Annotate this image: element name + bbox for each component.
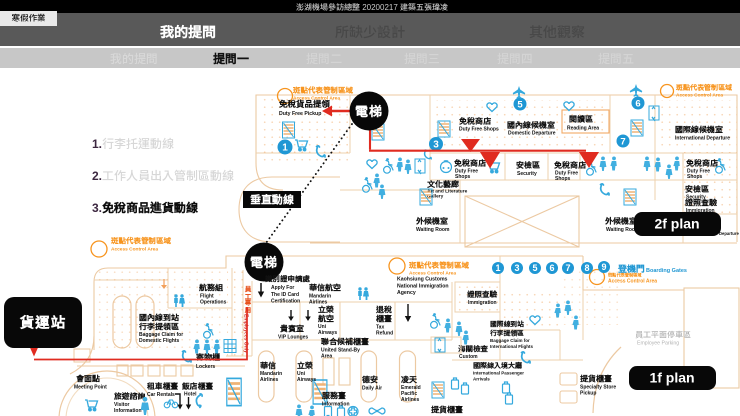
svg-text:航空: 航空 bbox=[317, 314, 334, 324]
svg-text:國際線到站: 國際線到站 bbox=[490, 320, 524, 329]
svg-text:貴賓室: 貴賓室 bbox=[279, 324, 304, 334]
svg-text:飯店櫃臺: 飯店櫃臺 bbox=[181, 381, 213, 391]
svg-text:3: 3 bbox=[433, 140, 439, 151]
svg-text:1: 1 bbox=[495, 263, 500, 273]
svg-text:The ID Card: The ID Card bbox=[271, 292, 299, 298]
svg-text:證照查驗: 證照查驗 bbox=[684, 198, 718, 208]
svg-text:國際線候機室: 國際線候機室 bbox=[675, 125, 723, 135]
svg-text:識別證申請處: 識別證申請處 bbox=[264, 275, 310, 284]
svg-text:Custom: Custom bbox=[459, 354, 478, 360]
svg-text:員工平面停車區: 員工平面停車區 bbox=[635, 331, 691, 340]
svg-text:行李提領區: 行李提領區 bbox=[489, 329, 524, 338]
svg-text:立榮: 立榮 bbox=[318, 305, 334, 315]
svg-text:外候機室: 外候機室 bbox=[415, 216, 448, 226]
svg-text:免稅貨品提領: 免稅貨品提領 bbox=[278, 99, 331, 109]
svg-text:Access Control Area: Access Control Area bbox=[111, 247, 158, 253]
svg-text:Access Control Area: Access Control Area bbox=[608, 279, 657, 285]
svg-text:Daily Air: Daily Air bbox=[362, 386, 382, 392]
svg-text:提貨櫃臺: 提貨櫃臺 bbox=[430, 405, 463, 415]
svg-text:Meeting Point: Meeting Point bbox=[74, 385, 107, 391]
svg-text:Departure: Departure bbox=[719, 231, 739, 236]
svg-text:Airlines: Airlines bbox=[401, 397, 420, 403]
svg-text:證照查驗: 證照查驗 bbox=[467, 290, 497, 299]
svg-text:Domestic Departure: Domestic Departure bbox=[508, 131, 556, 137]
svg-text:貨運站: 貨運站 bbox=[20, 315, 67, 332]
svg-text:華信航空: 華信航空 bbox=[309, 283, 341, 293]
svg-text:德安: 德安 bbox=[361, 375, 379, 385]
svg-text:Shops: Shops bbox=[555, 176, 570, 182]
svg-text:5: 5 bbox=[532, 263, 537, 273]
svg-text:National Immigration: National Immigration bbox=[397, 284, 449, 290]
svg-text:Apply For: Apply For bbox=[271, 285, 294, 291]
svg-text:旅遊諮詢: 旅遊諮詢 bbox=[113, 392, 145, 401]
svg-text:7: 7 bbox=[620, 137, 625, 148]
svg-text:8: 8 bbox=[584, 263, 589, 273]
svg-text:航務組: 航務組 bbox=[198, 283, 223, 293]
svg-text:安檢區: 安檢區 bbox=[685, 184, 710, 194]
svg-text:Arrivals: Arrivals bbox=[473, 377, 490, 382]
svg-text:垂直動線: 垂直動線 bbox=[250, 193, 294, 207]
svg-text:提貨櫃臺: 提貨櫃臺 bbox=[579, 374, 612, 384]
svg-text:Reading Area: Reading Area bbox=[567, 126, 599, 132]
svg-text:Operations: Operations bbox=[200, 300, 227, 306]
svg-text:安檢區: 安檢區 bbox=[516, 160, 541, 170]
svg-text:Refund: Refund bbox=[376, 331, 393, 337]
svg-text:9: 9 bbox=[601, 262, 606, 272]
svg-text:免稅商店: 免稅商店 bbox=[458, 116, 491, 126]
svg-text:Airlines: Airlines bbox=[260, 377, 279, 383]
svg-text:6: 6 bbox=[635, 99, 640, 110]
svg-text:服務臺: 服務臺 bbox=[321, 391, 346, 401]
svg-text:凌天: 凌天 bbox=[400, 375, 418, 385]
svg-text:7: 7 bbox=[565, 263, 570, 273]
svg-text:3: 3 bbox=[514, 263, 519, 273]
svg-text:聯合候補櫃臺: 聯合候補櫃臺 bbox=[320, 337, 369, 347]
svg-text:1f plan: 1f plan bbox=[649, 370, 694, 386]
svg-text:Immigration: Immigration bbox=[468, 300, 497, 306]
svg-text:Waiting Room: Waiting Room bbox=[416, 227, 450, 233]
svg-text:立榮: 立榮 bbox=[297, 361, 313, 371]
svg-text:Employee Parking: Employee Parking bbox=[637, 341, 679, 347]
svg-text:退稅: 退稅 bbox=[375, 306, 393, 315]
svg-text:International Departure: International Departure bbox=[675, 136, 730, 142]
svg-text:Shops: Shops bbox=[687, 174, 702, 180]
svg-text:閱讀區: 閱讀區 bbox=[569, 114, 594, 124]
svg-text:Access Control Area: Access Control Area bbox=[676, 93, 723, 99]
svg-text:外候機室: 外候機室 bbox=[604, 216, 637, 226]
svg-text:5: 5 bbox=[517, 100, 523, 111]
svg-text:文化藝廊: 文化藝廊 bbox=[427, 179, 459, 189]
svg-text:Kaohsiung Customs: Kaohsiung Customs bbox=[397, 277, 448, 283]
svg-text:會面點: 會面點 bbox=[75, 374, 100, 384]
svg-text:登機門: 登機門 bbox=[618, 263, 645, 274]
svg-text:斑點代表管制區域: 斑點代表管制區域 bbox=[292, 86, 353, 95]
svg-text:華信: 華信 bbox=[260, 361, 276, 371]
svg-text:Baggage Claim for: Baggage Claim for bbox=[490, 338, 530, 343]
svg-text:免稅商店: 免稅商店 bbox=[553, 160, 586, 170]
svg-text:Security: Security bbox=[517, 171, 537, 177]
svg-text:租車櫃臺: 租車櫃臺 bbox=[146, 381, 178, 391]
svg-text:行李提領區: 行李提領區 bbox=[138, 322, 180, 332]
svg-text:斑點代表管制區域: 斑點代表管制區域 bbox=[676, 83, 732, 92]
svg-text:Area: Area bbox=[321, 354, 332, 360]
svg-text:Domestic Flights: Domestic Flights bbox=[139, 338, 180, 344]
svg-text:免稅商店: 免稅商店 bbox=[453, 158, 486, 168]
svg-text:6: 6 bbox=[549, 263, 554, 273]
svg-text:Duty Free Shops: Duty Free Shops bbox=[459, 127, 499, 133]
svg-text:免稅商店: 免稅商店 bbox=[685, 158, 718, 168]
svg-text:Certification: Certification bbox=[271, 299, 300, 305]
svg-text:斑點代表管制區域: 斑點代表管制區域 bbox=[408, 261, 469, 270]
svg-text:International Flights: International Flights bbox=[490, 344, 533, 349]
svg-text:Airways: Airways bbox=[297, 377, 316, 383]
svg-text:Duty Free Pickup: Duty Free Pickup bbox=[279, 111, 321, 117]
svg-text:電梯: 電梯 bbox=[355, 104, 383, 119]
svg-text:國內線到站: 國內線到站 bbox=[139, 313, 180, 323]
svg-text:2f plan: 2f plan bbox=[654, 216, 699, 232]
svg-text:Airways: Airways bbox=[318, 330, 337, 336]
svg-text:1: 1 bbox=[282, 143, 288, 154]
svg-text:海關檢查: 海關檢查 bbox=[458, 345, 488, 354]
svg-text:Boarding Gates: Boarding Gates bbox=[646, 268, 687, 274]
svg-text:國際線入境大廳: 國際線入境大廳 bbox=[473, 361, 523, 370]
svg-text:Pickup: Pickup bbox=[580, 391, 596, 397]
svg-text:VIP Lounges: VIP Lounges bbox=[278, 335, 308, 341]
svg-text:Car Rentals: Car Rentals bbox=[147, 392, 175, 398]
svg-text:國內線候機室: 國內線候機室 bbox=[507, 120, 555, 130]
svg-text:櫃臺: 櫃臺 bbox=[375, 314, 392, 324]
svg-text:Lockers: Lockers bbox=[196, 364, 215, 370]
svg-text:Agency: Agency bbox=[397, 290, 416, 296]
svg-text:斑點代表管制區域: 斑點代表管制區域 bbox=[110, 237, 171, 246]
svg-text:Information: Information bbox=[114, 408, 142, 414]
svg-text:Hotel: Hotel bbox=[184, 392, 197, 398]
svg-text:電梯: 電梯 bbox=[250, 255, 278, 270]
svg-text:International Passenger: International Passenger bbox=[473, 371, 524, 376]
